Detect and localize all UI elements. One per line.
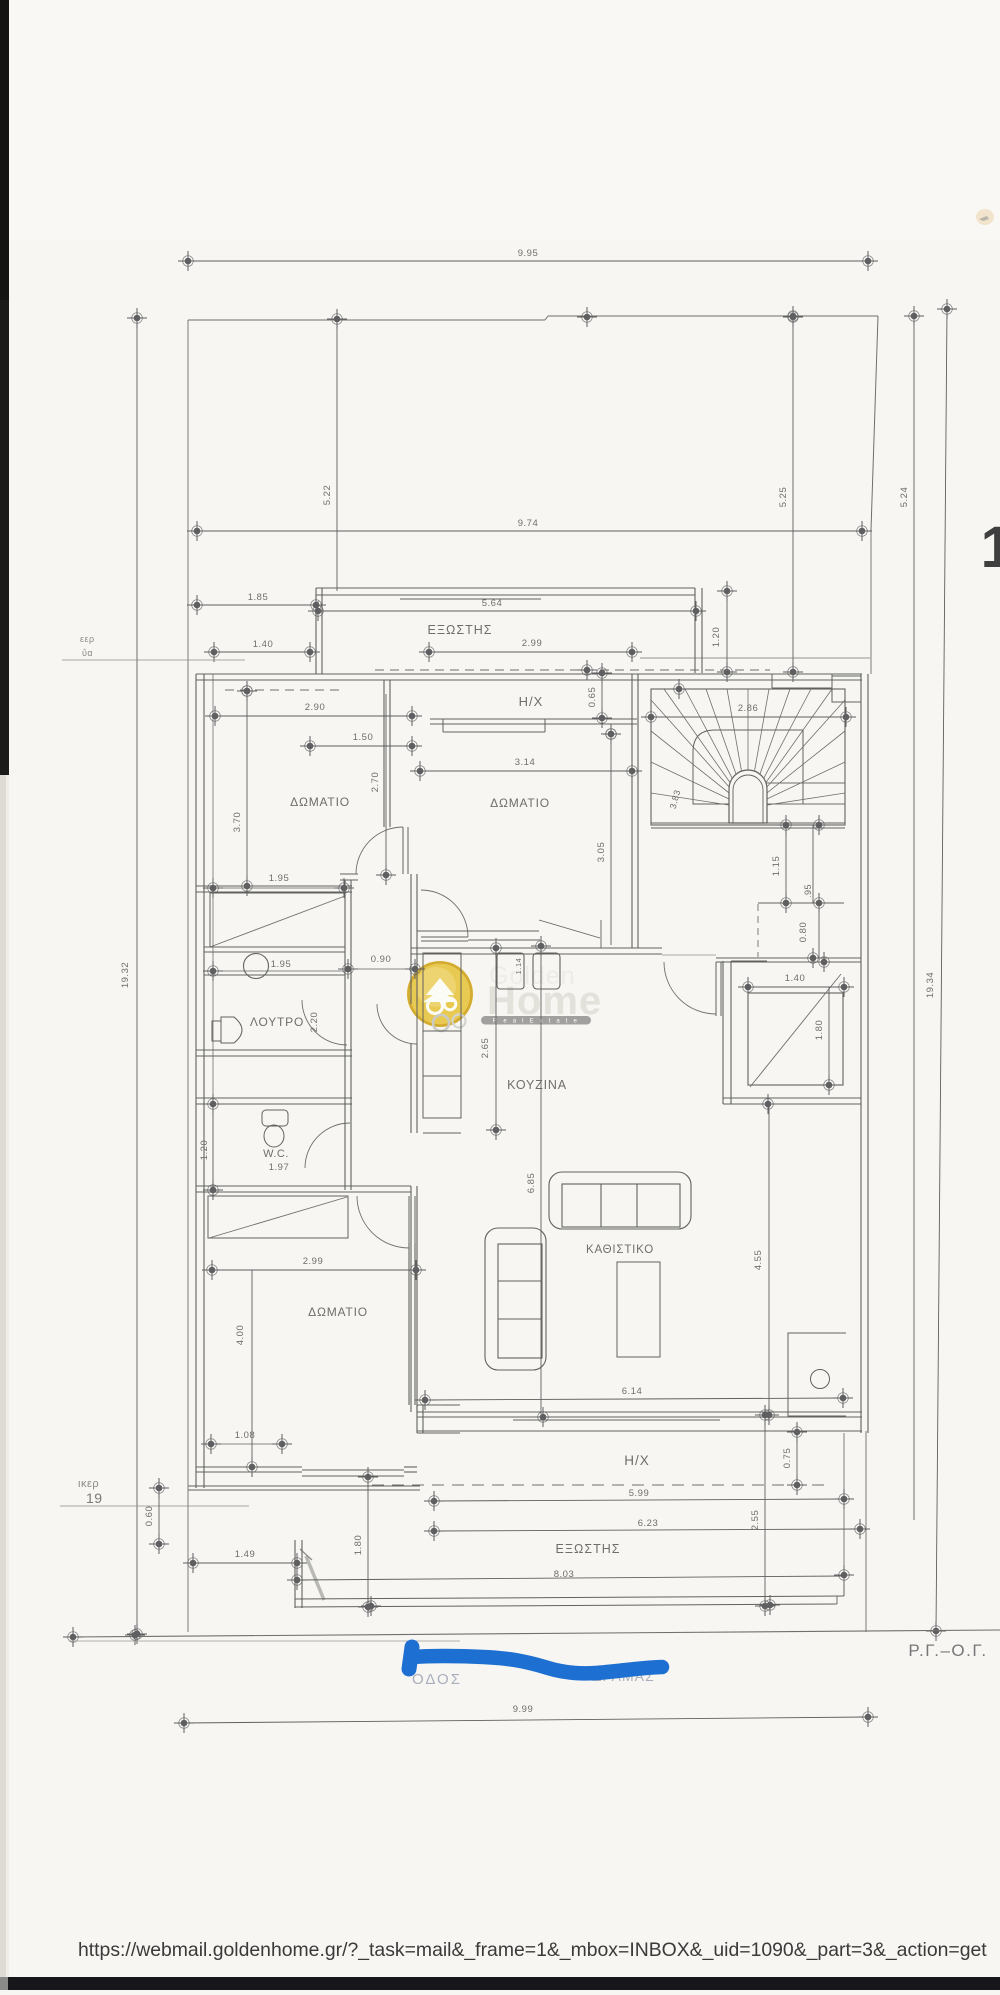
svg-text:2.70: 2.70 <box>370 772 381 793</box>
svg-text:1.80: 1.80 <box>353 1535 364 1556</box>
svg-text:5.99: 5.99 <box>629 1488 650 1499</box>
svg-text:https://webmail.goldenhome.gr/: https://webmail.goldenhome.gr/?_task=mai… <box>78 1939 987 1961</box>
svg-text:ΔΩΜΑΤΙΟ: ΔΩΜΑΤΙΟ <box>290 795 350 809</box>
svg-text:5.64: 5.64 <box>482 598 503 609</box>
svg-text:1.08: 1.08 <box>235 1430 256 1441</box>
svg-text:ΚΑΘΙΣΤΙΚΟ: ΚΑΘΙΣΤΙΚΟ <box>586 1244 654 1256</box>
svg-text:1.40: 1.40 <box>785 973 806 984</box>
svg-text:2.65: 2.65 <box>480 1038 491 1059</box>
svg-text:5.22: 5.22 <box>322 485 333 506</box>
svg-text:ΕΞΩΣΤΗΣ: ΕΞΩΣΤΗΣ <box>428 623 493 637</box>
svg-text:Ρ.Γ.–Ο.Γ.: Ρ.Γ.–Ο.Γ. <box>908 1641 987 1660</box>
svg-text:1.14: 1.14 <box>514 958 523 975</box>
svg-text:1.20: 1.20 <box>711 627 722 648</box>
svg-text:ΔΩΜΑΤΙΟ: ΔΩΜΑΤΙΟ <box>490 796 550 810</box>
svg-text:ΔΩΜΑΤΙΟ: ΔΩΜΑΤΙΟ <box>308 1305 368 1319</box>
svg-text:3.14: 3.14 <box>515 757 536 768</box>
svg-text:3.70: 3.70 <box>232 812 243 833</box>
svg-text:2.99: 2.99 <box>522 638 543 649</box>
svg-text:1.15: 1.15 <box>771 856 782 877</box>
svg-text:6.14: 6.14 <box>622 1386 643 1397</box>
svg-text:6.23: 6.23 <box>638 1518 659 1529</box>
svg-text:9.74: 9.74 <box>518 518 539 529</box>
svg-text:εερ: εερ <box>80 634 95 644</box>
svg-text:ΟΔΟΣ: ΟΔΟΣ <box>412 1671 462 1688</box>
svg-text:3.05: 3.05 <box>596 842 607 863</box>
svg-text:1.50: 1.50 <box>353 732 374 743</box>
svg-text:Golden: Golden <box>489 962 576 990</box>
svg-text:2.99: 2.99 <box>303 1256 324 1267</box>
svg-text:19.34: 19.34 <box>925 972 936 998</box>
svg-text:1.49: 1.49 <box>235 1549 256 1560</box>
svg-text:0.80: 0.80 <box>798 922 809 943</box>
svg-text:Η/Χ: Η/Χ <box>624 1453 650 1468</box>
svg-text:19.32: 19.32 <box>120 962 131 988</box>
svg-text:R e a l E s t a t e: R e a l E s t a t e <box>493 1019 579 1025</box>
svg-text:2.86: 2.86 <box>738 703 759 714</box>
svg-text:2.90: 2.90 <box>305 702 326 713</box>
svg-text:6.85: 6.85 <box>526 1173 537 1194</box>
svg-text:0.75: 0.75 <box>782 1448 793 1469</box>
svg-text:1.40: 1.40 <box>253 639 274 650</box>
svg-text:1: 1 <box>981 515 1000 580</box>
svg-text:1.95: 1.95 <box>269 873 290 884</box>
svg-text:ικερ: ικερ <box>78 1478 99 1490</box>
svg-text:19: 19 <box>86 1490 103 1506</box>
svg-text:4.55: 4.55 <box>753 1250 764 1271</box>
svg-text:0.60: 0.60 <box>144 1506 155 1527</box>
svg-text:.95: .95 <box>803 884 813 898</box>
svg-text:W.C.: W.C. <box>263 1148 289 1160</box>
svg-text:4.00: 4.00 <box>235 1325 246 1346</box>
svg-text:5.25: 5.25 <box>778 487 789 508</box>
svg-text:ΕΞΩΣΤΗΣ: ΕΞΩΣΤΗΣ <box>556 1542 621 1556</box>
svg-text:1.95: 1.95 <box>271 959 292 970</box>
svg-text:1.85: 1.85 <box>248 592 269 603</box>
svg-text:ΚΟΥΖΙΝΑ: ΚΟΥΖΙΝΑ <box>507 1078 567 1092</box>
svg-text:5.24: 5.24 <box>899 487 910 508</box>
svg-text:0.90: 0.90 <box>371 954 392 965</box>
svg-text:9.95: 9.95 <box>518 248 539 259</box>
svg-text:Η/Χ: Η/Χ <box>519 694 544 709</box>
svg-text:ΛΟΥΤΡΟ: ΛΟΥΤΡΟ <box>250 1015 304 1029</box>
svg-text:1.97: 1.97 <box>269 1162 290 1173</box>
svg-text:2.55: 2.55 <box>750 1510 761 1531</box>
svg-text:ΰα: ΰα <box>82 648 93 658</box>
svg-text:2.20: 2.20 <box>309 1012 320 1033</box>
svg-text:1.80: 1.80 <box>814 1020 825 1041</box>
svg-text:9.99: 9.99 <box>513 1704 534 1715</box>
svg-text:1.20: 1.20 <box>199 1140 210 1161</box>
svg-text:0.65: 0.65 <box>587 687 598 708</box>
